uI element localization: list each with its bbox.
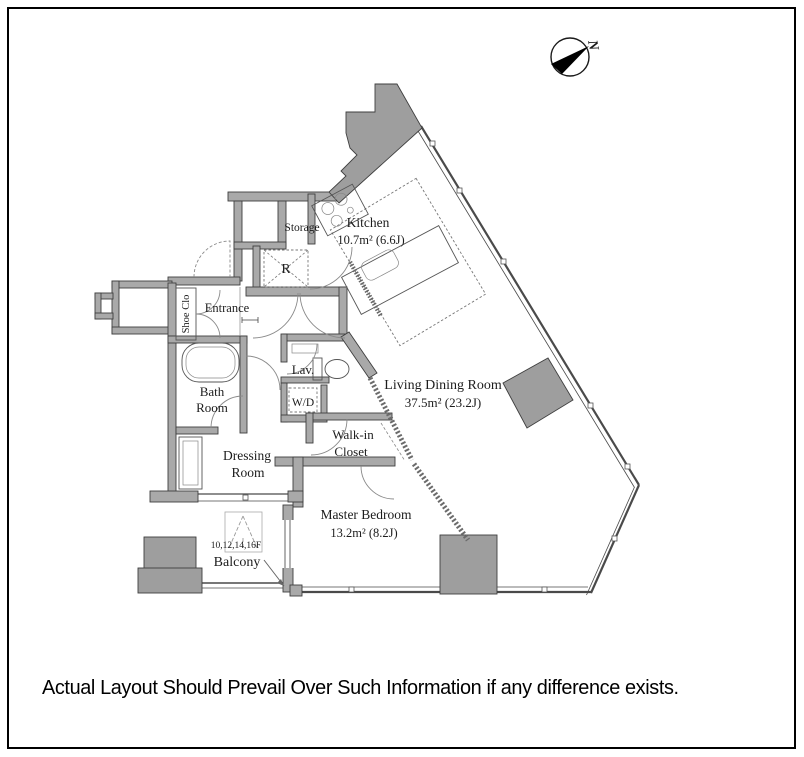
label-washer-dryer: W/D bbox=[292, 397, 314, 409]
wall-storage-right bbox=[308, 194, 315, 244]
wall-left-upper bbox=[168, 283, 176, 340]
wall-alcove-left bbox=[112, 281, 119, 334]
compass-north-label: N bbox=[584, 38, 601, 53]
wall-bath-bottom bbox=[176, 427, 218, 434]
toilet-bowl-icon bbox=[325, 360, 349, 379]
mullion bbox=[588, 403, 593, 408]
label-living-dining-area: 37.5m² (23.2J) bbox=[405, 395, 481, 410]
wall-alcove-top bbox=[112, 281, 172, 288]
label-kitchen-area: 10.7m² (6.6J) bbox=[337, 233, 404, 247]
label-lavatory: Lav. bbox=[292, 362, 315, 377]
stove-burner bbox=[320, 200, 336, 216]
wall-fridge-left bbox=[253, 246, 260, 293]
label-refrigerator: R bbox=[281, 261, 290, 276]
vanity-icon bbox=[179, 437, 202, 489]
wall-corridor-left bbox=[234, 201, 242, 281]
shoe-closet-door-arc-lower bbox=[196, 314, 220, 338]
window-balcony-bedroom-gap bbox=[282, 520, 294, 568]
floorplan-drawing: N Storage Kitchen 10.7m² (6.6J) Living D… bbox=[0, 0, 804, 757]
sliding-partition-bedroom bbox=[414, 464, 468, 540]
label-balcony-floors: 10,12,14,16F bbox=[211, 541, 261, 551]
pillar-top-fin bbox=[329, 84, 422, 203]
floorplan-page: N Storage Kitchen 10.7m² (6.6J) Living D… bbox=[0, 0, 804, 757]
wall-dressing-balcony-cap bbox=[288, 491, 303, 502]
closet-rail-dashed bbox=[381, 423, 405, 461]
stove-burner bbox=[346, 206, 354, 214]
wall-hall-right bbox=[339, 287, 347, 337]
bedroom-door-arc bbox=[361, 466, 394, 499]
wall-notch-c bbox=[95, 313, 113, 319]
wall-wic-top bbox=[306, 413, 392, 420]
wall-bedroom-south-cap bbox=[290, 585, 302, 596]
compass: N bbox=[551, 38, 601, 76]
pillar-balcony bbox=[144, 537, 196, 571]
label-storage: Storage bbox=[284, 222, 319, 234]
mullion bbox=[625, 464, 630, 469]
label-balcony: Balcony bbox=[214, 555, 261, 570]
mullion bbox=[349, 587, 354, 592]
bathtub-inner bbox=[186, 347, 235, 378]
label-living-dining: Living Dining Room bbox=[384, 378, 502, 393]
kitchen-counter-hatch bbox=[350, 262, 381, 316]
wall-wd-right bbox=[321, 385, 327, 417]
label-master-bedroom-area: 13.2m² (8.2J) bbox=[330, 526, 397, 540]
kitchen-door-arc bbox=[310, 247, 352, 289]
front-door-arc bbox=[194, 241, 230, 277]
label-master-bedroom: Master Bedroom bbox=[320, 507, 412, 522]
wall-lav-left bbox=[281, 334, 287, 362]
label-kitchen: Kitchen bbox=[347, 215, 390, 230]
ldk-door-arc-left bbox=[253, 293, 298, 338]
stove-burner bbox=[329, 213, 344, 228]
label-bath-2: Room bbox=[196, 400, 228, 415]
wall-left-main bbox=[168, 336, 176, 498]
label-shoe-closet: Shoe Clo bbox=[181, 295, 192, 334]
wall-wic-left bbox=[306, 413, 313, 443]
bathtub-icon bbox=[182, 343, 239, 382]
vanity-inner bbox=[183, 441, 198, 485]
mullion bbox=[457, 188, 462, 193]
mullion bbox=[501, 259, 506, 264]
ldk-door-arc-right bbox=[300, 293, 345, 338]
mullion bbox=[542, 587, 547, 592]
window-wall-diagonal-outer bbox=[421, 126, 639, 485]
mullion bbox=[243, 495, 248, 500]
wall-bath-right bbox=[240, 336, 247, 433]
entrance-dimension-marker bbox=[242, 317, 258, 323]
mullion bbox=[612, 536, 617, 541]
label-bath-1: Bath bbox=[200, 384, 225, 399]
label-walkin-2: Closet bbox=[334, 444, 368, 459]
pillar-balcony-foot bbox=[138, 568, 202, 593]
wall-dressing-balcony bbox=[150, 491, 198, 502]
wall-hall-top bbox=[246, 287, 346, 296]
window-wall-corner-inner bbox=[587, 487, 635, 595]
window-wall-diagonal-inner bbox=[417, 129, 635, 488]
label-walkin-1: Walk-in bbox=[332, 427, 374, 442]
washroom-door-arc bbox=[246, 356, 280, 390]
label-entrance: Entrance bbox=[205, 301, 250, 315]
wall-entrance-top bbox=[168, 277, 240, 285]
lav-shelf-icon bbox=[292, 344, 318, 353]
wall-lav-diagonal bbox=[341, 332, 377, 378]
pillar-south bbox=[440, 535, 497, 594]
label-dressing-2: Room bbox=[231, 465, 265, 480]
mullion bbox=[430, 141, 435, 146]
label-dressing-1: Dressing bbox=[223, 448, 271, 463]
disclaimer-caption: Actual Layout Should Prevail Over Such I… bbox=[42, 676, 679, 700]
wall-alcove-bottom bbox=[112, 327, 172, 334]
wall-bath-top bbox=[168, 336, 247, 343]
